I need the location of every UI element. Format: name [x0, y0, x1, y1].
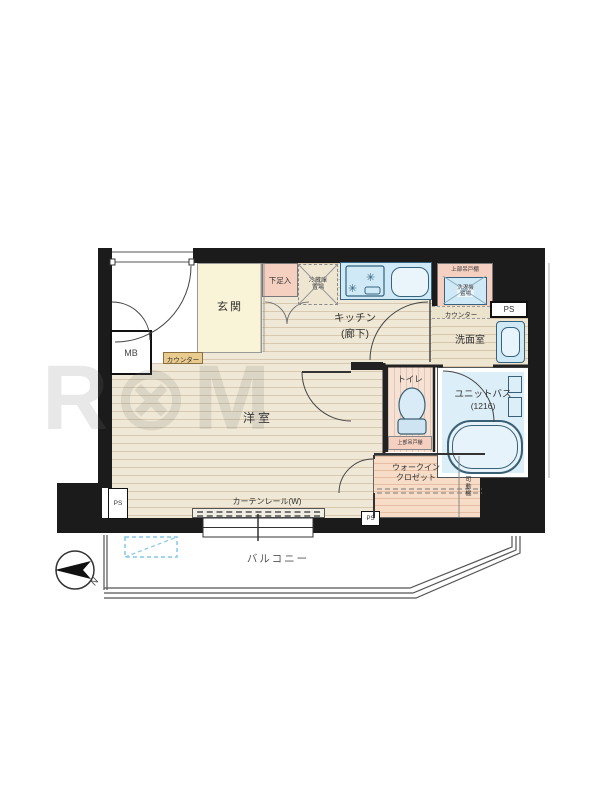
toilet-label: トイレ [387, 373, 433, 385]
genkan-label: 玄関 [200, 298, 260, 314]
floor-plan: 下足入 冷蔵庫置場 上部吊戸棚 洗濯機置場 カウンター カウンター PS MB … [0, 0, 600, 800]
counter-right-label: カウンター [432, 309, 490, 319]
ps-left-box: PS [108, 488, 128, 519]
kitchen-counter-unit [340, 262, 432, 300]
bathtub-inner [452, 425, 518, 469]
counter-left: カウンター [163, 352, 203, 364]
evacuation-hatch-diagonal [125, 537, 177, 557]
toilet-upper-cabinet-label: 上部吊戸棚 [389, 439, 431, 446]
washroom-sink [496, 321, 525, 363]
compass-circle [56, 551, 94, 589]
bathtub [447, 420, 523, 474]
compass-needle [55, 561, 91, 579]
kitchen-label: キッチン(廊下) [315, 311, 395, 343]
ps-top-box: PS [490, 301, 528, 318]
toilet-upper-cabinet: 上部吊戸棚 [388, 436, 432, 450]
mb-box: MB [110, 330, 152, 375]
washer-label: 洗濯機置場 [457, 285, 474, 297]
washer-space: 洗濯機置場 [444, 277, 487, 305]
unit-bath-floor [442, 372, 524, 473]
washroom-sink-bowl [501, 327, 520, 357]
wall-bottom [98, 518, 488, 533]
movable-shelf-label: 可動棚 [463, 459, 472, 514]
unit-bath-label: ユニットバス(1216) [440, 389, 526, 412]
balcony-left-edge [104, 535, 107, 590]
upper-cabinet-label: 上部吊戸棚 [438, 265, 492, 273]
wall-top [193, 248, 545, 263]
unit-bath-room [437, 367, 529, 478]
wic-label: ウォークインクロゼット [376, 463, 456, 484]
fridge-label: 冷蔵庫置場 [309, 278, 327, 292]
ps-bottom-box: PS [361, 511, 380, 526]
washroom-label: 洗面室 [443, 331, 497, 346]
wall-bottom-right-block [480, 478, 545, 533]
western-room-label: 洋室 [228, 409, 288, 426]
wall-right [528, 260, 545, 478]
evacuation-hatch [125, 537, 177, 557]
counter-left-label: カウンター [164, 354, 202, 364]
shoe-cabinet: 下足入 [262, 263, 298, 297]
wall-top-right-step [493, 263, 530, 301]
curtain-rail-label: カーテンレール(W) [212, 496, 322, 507]
curtain-rail-dash-1 [197, 511, 320, 513]
balcony-railing [104, 536, 520, 598]
wall-bottom-left-step [57, 483, 102, 533]
balcony-label: バルコニー [233, 551, 323, 566]
curtain-rail-dash-2 [197, 515, 320, 517]
curtain-rail-bar [192, 508, 325, 518]
kitchen-sink [391, 267, 429, 297]
fridge-space: 冷蔵庫置場 [298, 264, 338, 305]
compass-north-label: N [88, 576, 100, 587]
counter-right: カウンター [432, 306, 490, 319]
western-room-floor [112, 363, 383, 518]
entrance-threshold-lines [112, 252, 193, 262]
shoe-cabinet-label: 下足入 [269, 275, 292, 286]
laundry-alcove: 上部吊戸棚 洗濯機置場 [437, 263, 493, 307]
